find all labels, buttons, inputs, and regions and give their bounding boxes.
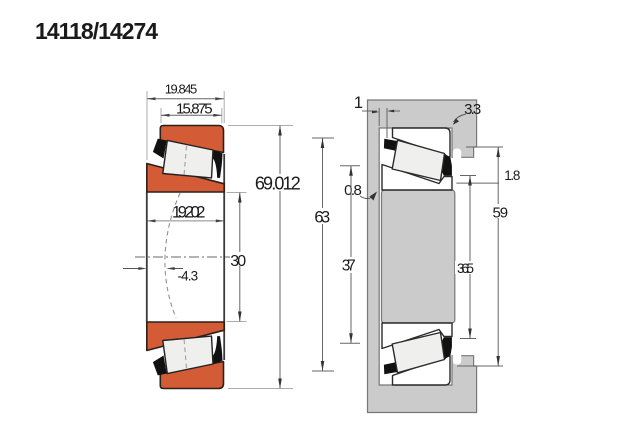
svg-text:19.845: 19.845	[165, 82, 197, 97]
svg-text:69.012: 69.012	[255, 173, 301, 193]
svg-text:37: 37	[342, 258, 356, 275]
svg-text:0.8: 0.8	[344, 182, 362, 199]
svg-text:36.5: 36.5	[457, 261, 474, 276]
svg-text:3.3: 3.3	[464, 101, 481, 118]
svg-text:1: 1	[354, 94, 363, 112]
svg-text:30: 30	[230, 253, 246, 270]
svg-text:63: 63	[314, 208, 330, 226]
svg-text:59: 59	[492, 205, 508, 222]
svg-text:1.8: 1.8	[504, 168, 520, 183]
svg-text:14118/14274: 14118/14274	[35, 18, 158, 44]
svg-text:15.875: 15.875	[176, 100, 213, 117]
svg-text:19.202: 19.202	[172, 204, 205, 222]
svg-text:-4.3: -4.3	[178, 269, 199, 284]
